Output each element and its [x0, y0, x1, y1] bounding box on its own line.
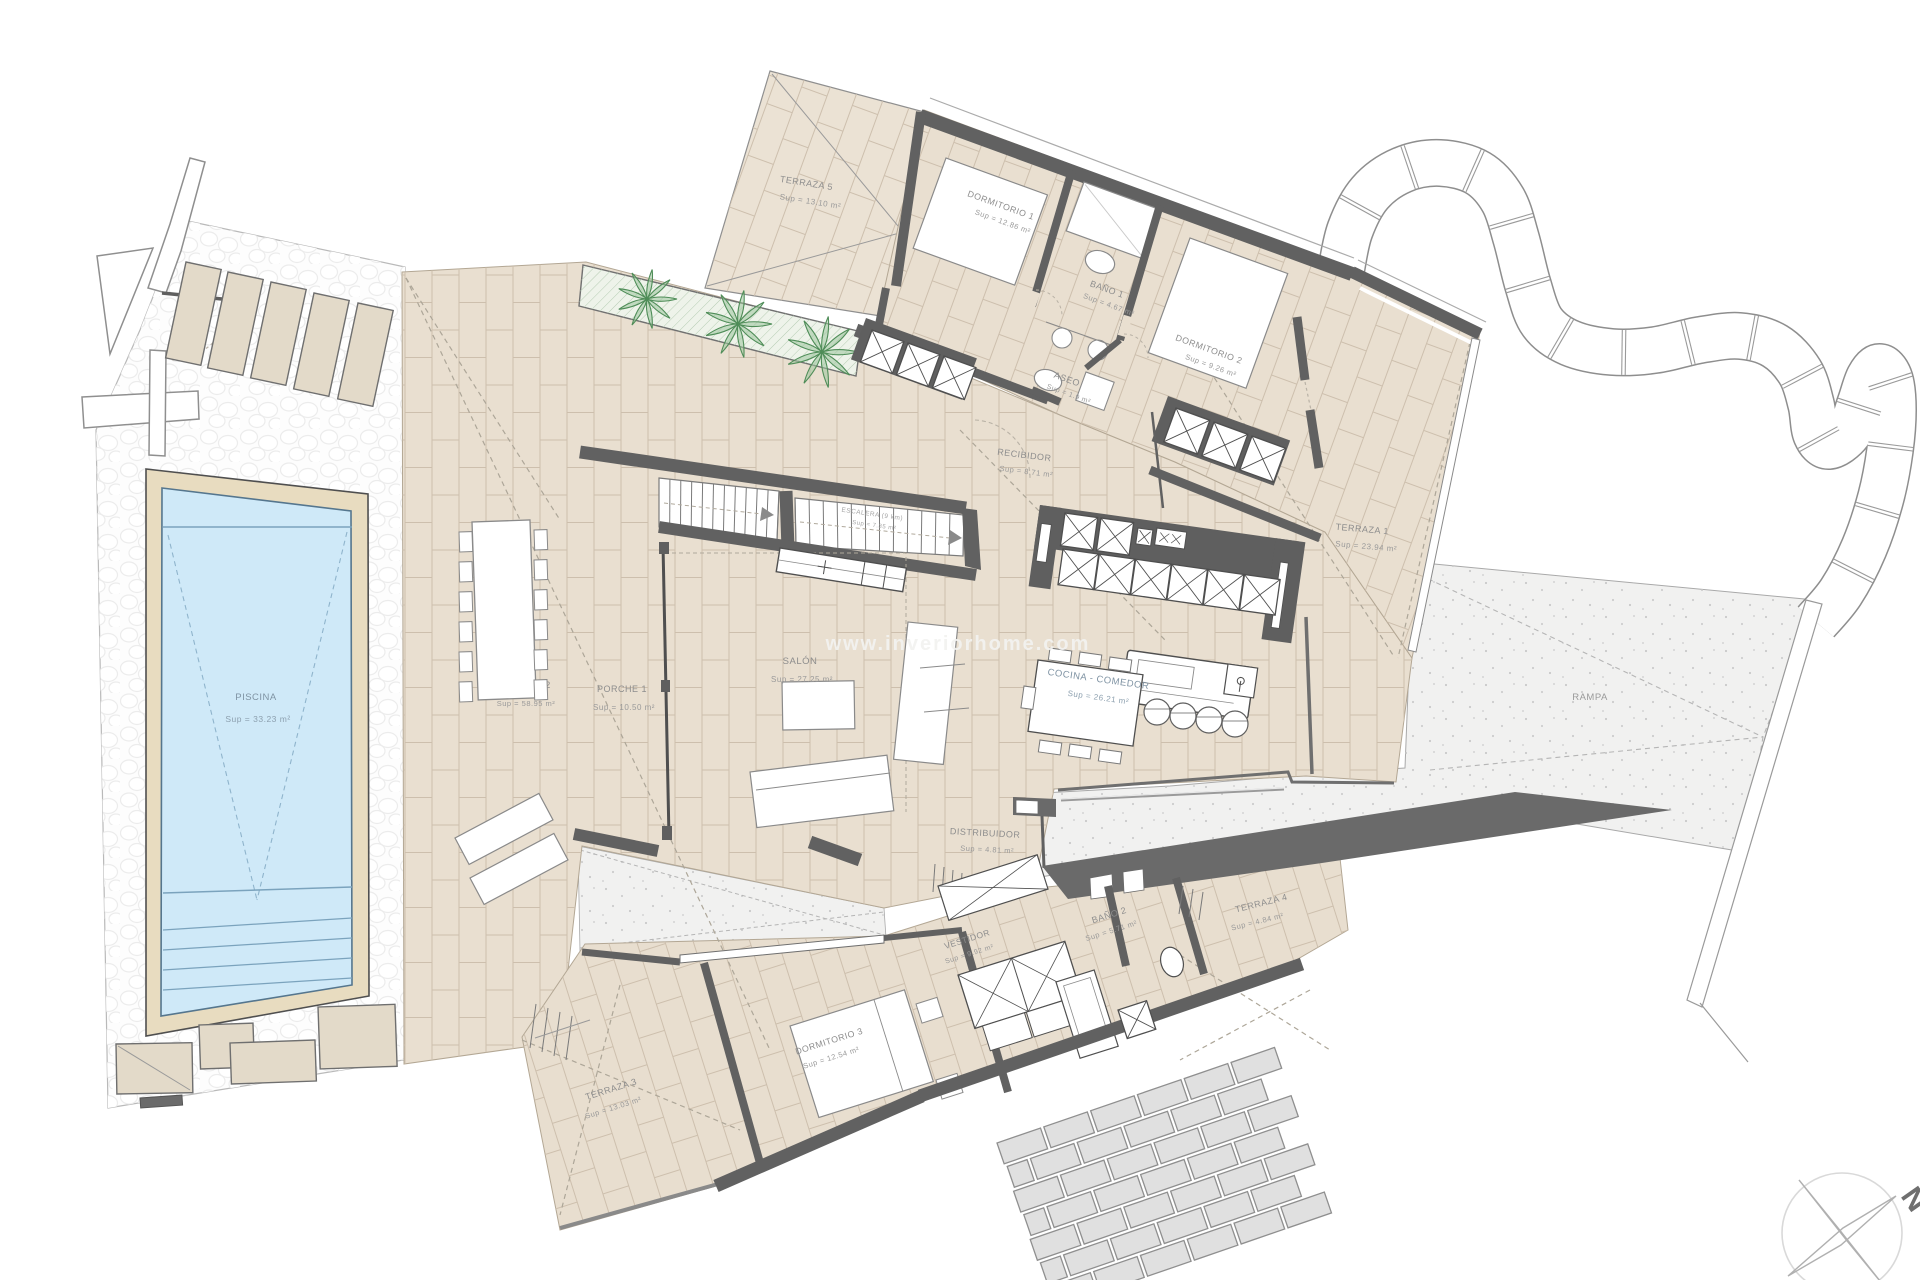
svg-text:Sup = 10.50 m²: Sup = 10.50 m² [593, 703, 655, 712]
svg-text:Sup = 27.25 m²: Sup = 27.25 m² [771, 675, 833, 684]
svg-text:PISCINA: PISCINA [235, 692, 277, 703]
svg-text:Sup = 58.95 m²: Sup = 58.95 m² [497, 699, 556, 708]
svg-text:RAMPA: RAMPA [1572, 692, 1608, 703]
svg-text:Sup = 33.23 m²: Sup = 33.23 m² [225, 714, 290, 724]
svg-text:www.inveriorhome.com: www.inveriorhome.com [825, 633, 1091, 655]
svg-text:SALÓN: SALÓN [783, 656, 818, 667]
svg-text:PORCHE 1: PORCHE 1 [597, 684, 647, 694]
